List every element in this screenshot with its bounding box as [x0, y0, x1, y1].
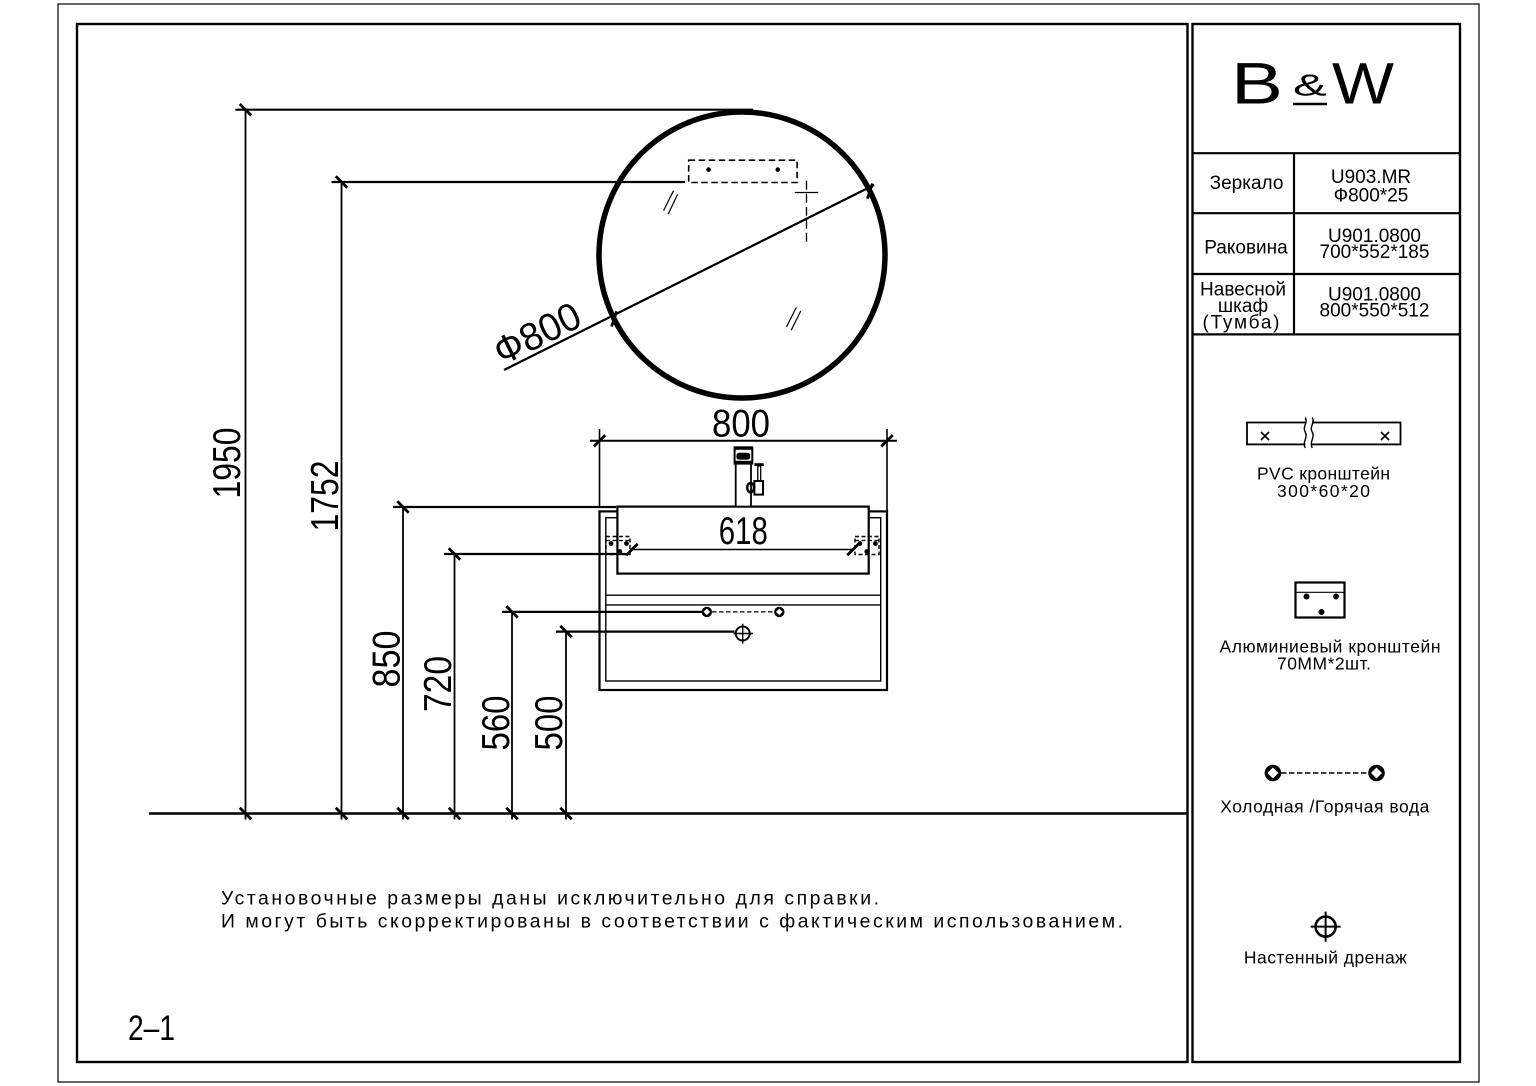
- svg-text:И могут быть скорректированы в: И могут быть скорректированы в соответст…: [221, 911, 1123, 933]
- svg-text:2–1: 2–1: [128, 1009, 175, 1048]
- svg-text:720: 720: [417, 656, 460, 712]
- svg-text:Ф800*25: Ф800*25: [1334, 186, 1409, 207]
- svg-text:850: 850: [366, 631, 409, 688]
- svg-text:W: W: [1332, 52, 1394, 117]
- svg-text:800: 800: [712, 403, 770, 446]
- svg-text:Холодная /Горячая вода: Холодная /Горячая вода: [1220, 797, 1429, 817]
- svg-text:Настенный дренаж: Настенный дренаж: [1244, 948, 1407, 968]
- svg-text:70ММ*2шт.: 70ММ*2шт.: [1277, 654, 1371, 674]
- svg-text:800*550*512: 800*550*512: [1320, 300, 1430, 321]
- svg-text:Зеркало: Зеркало: [1210, 173, 1284, 194]
- svg-text:300*60*20: 300*60*20: [1277, 481, 1370, 501]
- svg-text:(Тумба): (Тумба): [1203, 313, 1280, 334]
- svg-text:B: B: [1231, 52, 1283, 117]
- svg-text:618: 618: [719, 510, 768, 553]
- svg-text:&: &: [1293, 68, 1328, 103]
- svg-text:1950: 1950: [206, 428, 249, 499]
- svg-text:Установочные размеры даны искл: Установочные размеры даны исключительно …: [221, 887, 879, 909]
- svg-text:560: 560: [475, 696, 518, 751]
- svg-text:700*552*185: 700*552*185: [1320, 242, 1430, 263]
- svg-text:Раковина: Раковина: [1204, 238, 1288, 259]
- svg-text:1752: 1752: [304, 461, 347, 532]
- svg-text:500: 500: [528, 696, 571, 751]
